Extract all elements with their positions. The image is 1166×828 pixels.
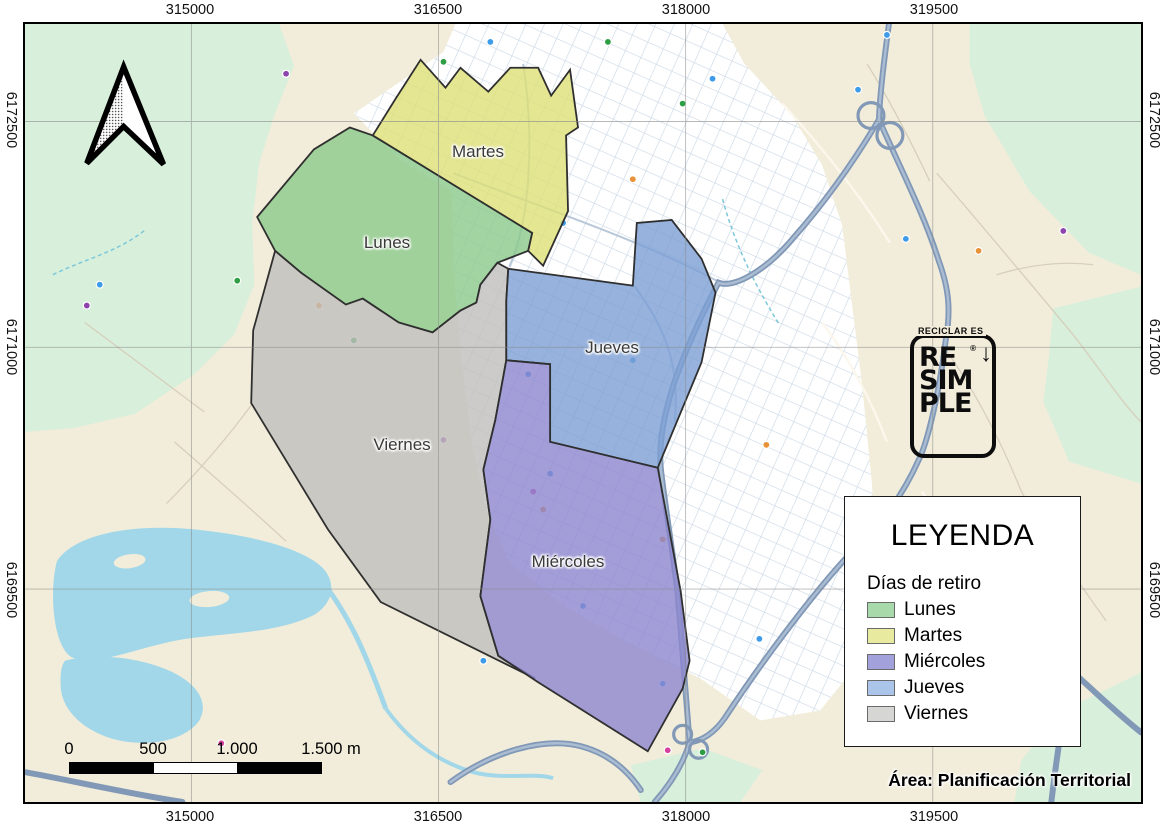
- map-layout-page: 315000 316500 318000 319500 315000 31650…: [0, 0, 1166, 828]
- legend-item-martes: Martes: [867, 627, 1080, 645]
- map-canvas: Lunes Martes Miércoles Jueves Viernes RE…: [23, 22, 1143, 804]
- axis-label-top-3: 318000: [662, 2, 710, 18]
- swatch-miercoles: [867, 654, 895, 670]
- scale-bar: 0 500 1.000 1.500 m: [55, 740, 375, 782]
- scale-tick-1000: 1.000: [216, 740, 257, 759]
- resimple-wordmark: RE SIM PLE: [919, 346, 972, 416]
- scale-tick-500: 500: [139, 740, 167, 759]
- legend-label-martes: Martes: [904, 625, 962, 647]
- legend-subtitle: Días de retiro: [867, 573, 1080, 595]
- legend-title: LEYENDA: [845, 519, 1080, 553]
- swatch-martes: [867, 628, 895, 644]
- down-arrow-icon: ↓: [980, 340, 992, 368]
- legend-label-lunes: Lunes: [904, 599, 956, 621]
- credit-text: Área: Planificación Territorial: [888, 770, 1131, 791]
- zone-label-jueves: Jueves: [585, 338, 639, 358]
- zone-label-miercoles: Miércoles: [532, 552, 605, 572]
- legend-label-viernes: Viernes: [904, 703, 968, 725]
- axis-label-top-2: 316500: [414, 2, 462, 18]
- axis-label-bottom-3: 318000: [662, 809, 710, 825]
- legend-box: LEYENDA Días de retiro Lunes Martes Miér…: [844, 496, 1081, 747]
- legend-item-viernes: Viernes: [867, 705, 1080, 723]
- axis-label-left-2: 6171000: [3, 319, 19, 375]
- legend-label-miercoles: Miércoles: [904, 651, 985, 673]
- resimple-logo: RECICLAR ES ↓ ® RE SIM PLE: [910, 328, 998, 461]
- zone-label-lunes: Lunes: [364, 233, 410, 253]
- axis-label-right-2: 6171000: [1146, 319, 1162, 375]
- swatch-lunes: [867, 602, 895, 618]
- axis-label-bottom-2: 316500: [414, 809, 462, 825]
- resimple-line-3: PLE: [919, 392, 972, 415]
- zone-label-viernes: Viernes: [373, 435, 430, 455]
- scale-segment-3: [237, 763, 321, 773]
- scale-bar-segments: [69, 762, 322, 774]
- axis-label-left-1: 6172500: [3, 92, 19, 148]
- axis-label-left-3: 6169500: [3, 562, 19, 618]
- legend-label-jueves: Jueves: [904, 677, 964, 699]
- legend-item-miercoles: Miércoles: [867, 653, 1080, 671]
- legend-item-lunes: Lunes: [867, 601, 1080, 619]
- scale-tick-1500: 1.500 m: [301, 740, 361, 759]
- zone-label-martes: Martes: [452, 142, 504, 162]
- scale-bar-labels: 0 500 1.000 1.500 m: [55, 740, 375, 762]
- scale-segment-1: [70, 763, 154, 773]
- swatch-jueves: [867, 680, 895, 696]
- axis-label-top-1: 315000: [166, 2, 214, 18]
- axis-label-right-1: 6172500: [1146, 92, 1162, 148]
- resimple-tagline: RECICLAR ES: [915, 326, 986, 336]
- scale-tick-0: 0: [64, 740, 73, 759]
- legend-item-jueves: Jueves: [867, 679, 1080, 697]
- axis-label-top-4: 319500: [910, 2, 958, 18]
- axis-label-bottom-4: 319500: [910, 809, 958, 825]
- axis-label-bottom-1: 315000: [166, 809, 214, 825]
- scale-segment-2: [154, 763, 238, 773]
- swatch-viernes: [867, 706, 895, 722]
- axis-label-right-3: 6169500: [1146, 562, 1162, 618]
